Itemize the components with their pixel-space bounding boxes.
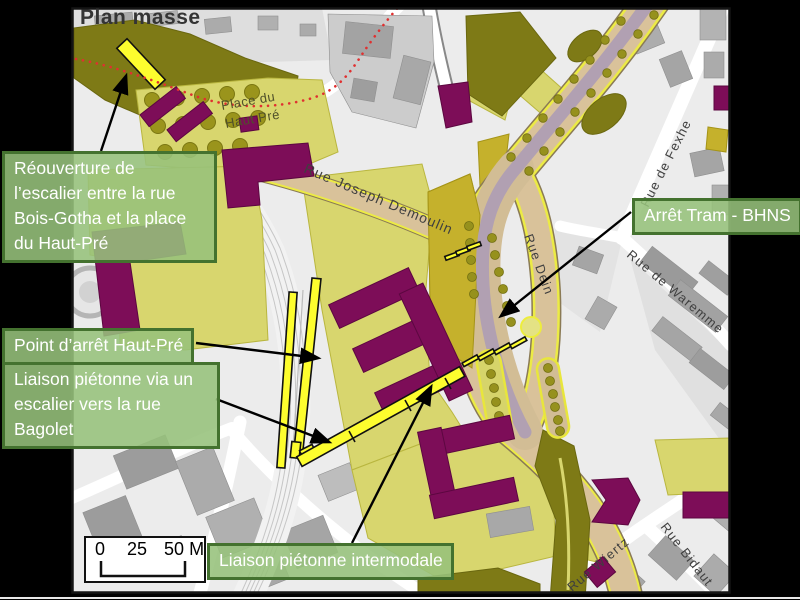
scale-bar-numbers: 0 25 50 M <box>86 539 204 560</box>
scale-bar-bracket <box>86 559 204 581</box>
slide-bottom-edge <box>0 597 800 599</box>
scale-tick-0: 0 <box>95 539 105 560</box>
annotation-liaison-escalier-bagolet: Liaison piétonne via un escalier vers la… <box>2 362 220 449</box>
map-canvas: Rue Joseph Demoulin Rue Dein Rue de Fexh… <box>0 0 800 600</box>
scale-tick-50: 50 <box>164 539 184 560</box>
scale-bar: 0 25 50 M <box>84 536 206 583</box>
annotation-arret-tram-bhns: Arrêt Tram - BHNS <box>632 198 800 235</box>
page-title: Plan masse <box>80 6 201 30</box>
scale-unit: M <box>189 539 204 560</box>
slide-plan-masse: Rue Joseph Demoulin Rue Dein Rue de Fexh… <box>0 0 800 600</box>
annotation-point-arret-haut-pre: Point d’arrêt Haut-Pré <box>2 328 194 365</box>
scale-tick-25: 25 <box>127 539 147 560</box>
annotation-liaison-intermodale: Liaison piétonne intermodale <box>207 543 454 580</box>
annotation-reouverture-escalier: Réouverture de l’escalier entre la rue B… <box>2 151 217 263</box>
